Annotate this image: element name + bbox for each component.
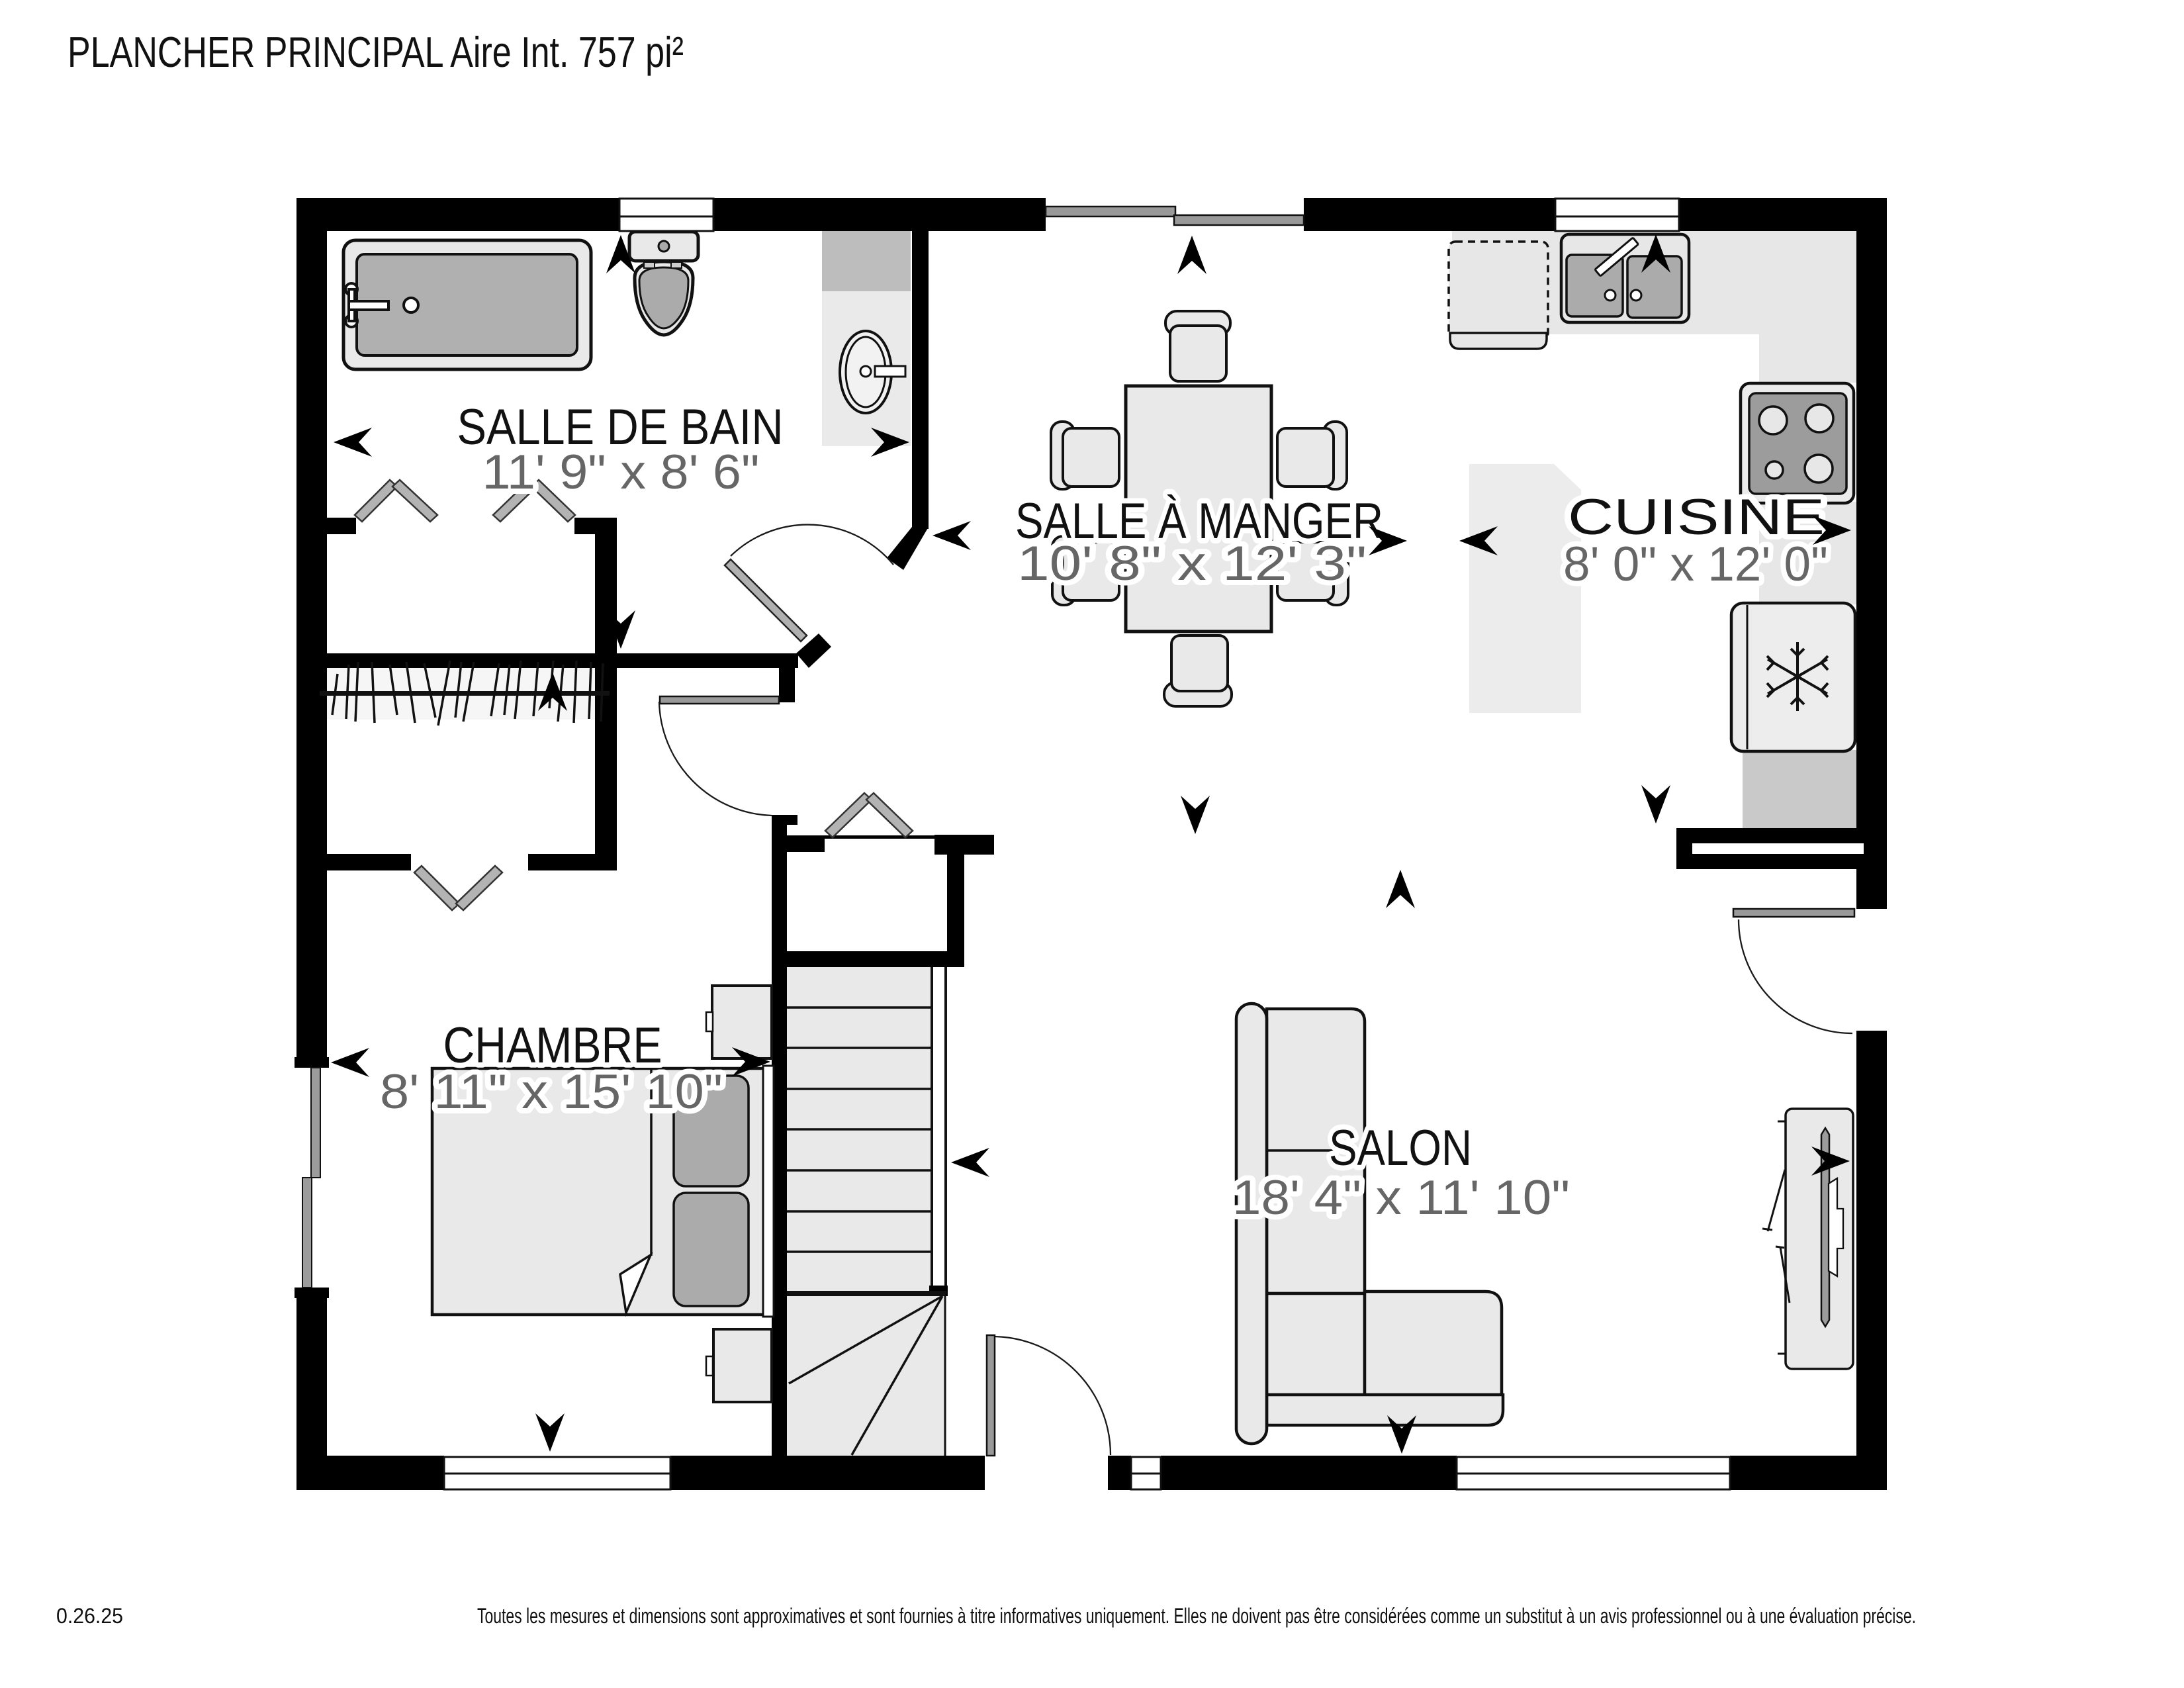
- svg-text:11' 9" x 8' 6": 11' 9" x 8' 6": [482, 445, 760, 499]
- svg-text:8' 11" x 15' 10": 8' 11" x 15' 10": [380, 1065, 723, 1119]
- svg-text:Toutes les mesures et dimensio: Toutes les mesures et dimensions sont ap…: [477, 1604, 1916, 1628]
- svg-text:10' 8" x 12' 3": 10' 8" x 12' 3": [1017, 537, 1367, 590]
- svg-text:0.26.25: 0.26.25: [56, 1604, 123, 1628]
- svg-text:SALON: SALON: [1329, 1120, 1472, 1176]
- svg-text:18' 4" x 11' 10": 18' 4" x 11' 10": [1232, 1171, 1570, 1225]
- svg-text:PLANCHER PRINCIPAL Aire Int. 7: PLANCHER PRINCIPAL Aire Int. 757 pi²: [68, 28, 684, 76]
- svg-text:8' 0" x 12' 0": 8' 0" x 12' 0": [1563, 538, 1828, 591]
